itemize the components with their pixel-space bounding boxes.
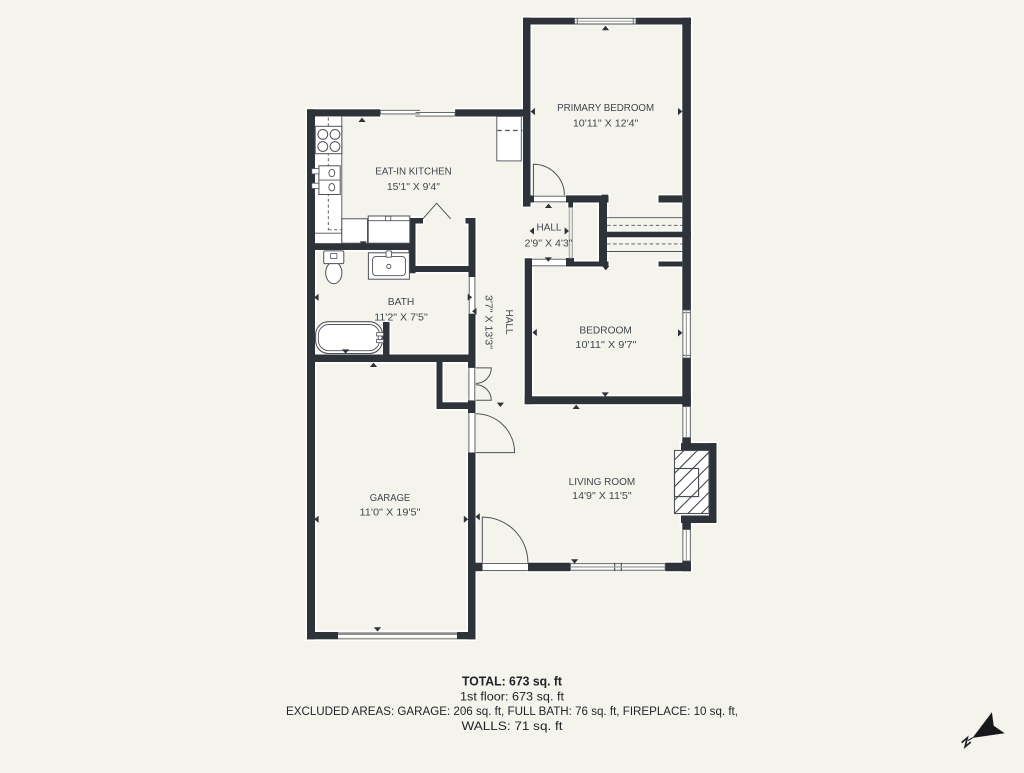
svg-text:HALL: HALL (537, 223, 562, 234)
svg-text:EXCLUDED AREAS: GARAGE: 206 sq: EXCLUDED AREAS: GARAGE: 206 sq. ft, FULL… (286, 704, 738, 718)
svg-text:3'7" X 13'3": 3'7" X 13'3" (483, 295, 494, 349)
svg-text:2'9" X 4'3": 2'9" X 4'3" (525, 238, 573, 249)
svg-text:WALLS: 71 sq. ft: WALLS: 71 sq. ft (462, 719, 564, 733)
svg-text:10'11" X 9'7": 10'11" X 9'7" (575, 340, 636, 351)
svg-text:BEDROOM: BEDROOM (579, 325, 632, 336)
svg-text:10'11" X 12'4": 10'11" X 12'4" (573, 118, 639, 129)
svg-text:BATH: BATH (388, 297, 415, 308)
svg-text:15'1" X 9'4": 15'1" X 9'4" (387, 182, 440, 193)
svg-text:GARAGE: GARAGE (370, 493, 411, 504)
svg-text:1st floor: 673 sq. ft: 1st floor: 673 sq. ft (460, 689, 565, 703)
svg-text:LIVING ROOM: LIVING ROOM (569, 477, 636, 488)
svg-text:TOTAL: 673 sq. ft: TOTAL: 673 sq. ft (462, 675, 563, 689)
svg-text:11'0" X 19'5": 11'0" X 19'5" (360, 508, 421, 519)
svg-text:HALL: HALL (503, 310, 514, 335)
svg-text:14'9" X 11'5": 14'9" X 11'5" (572, 491, 632, 502)
svg-text:EAT-IN KITCHEN: EAT-IN KITCHEN (375, 167, 452, 178)
svg-text:11'2" X 7'5": 11'2" X 7'5" (374, 313, 428, 324)
svg-text:PRIMARY BEDROOM: PRIMARY BEDROOM (557, 103, 654, 114)
